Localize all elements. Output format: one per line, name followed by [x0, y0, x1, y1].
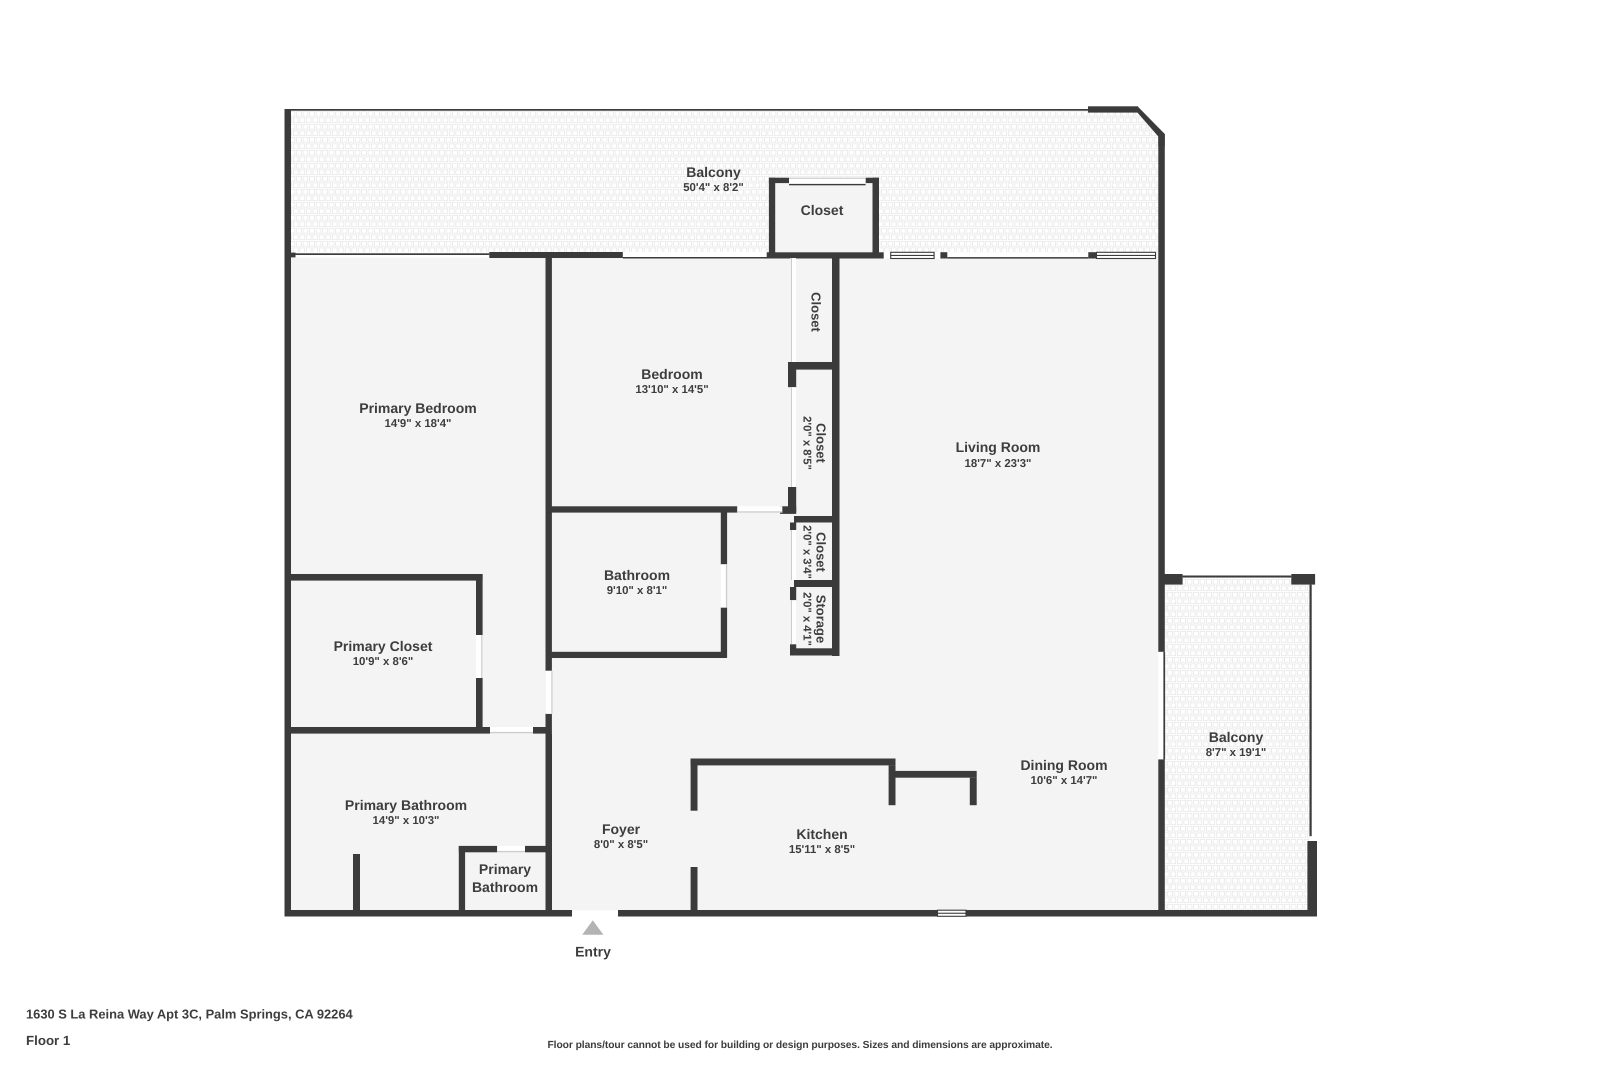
- svg-text:Bathroom: Bathroom: [604, 567, 670, 583]
- svg-text:18'7" x 23'3": 18'7" x 23'3": [965, 458, 1032, 470]
- svg-text:Bathroom: Bathroom: [472, 879, 538, 895]
- svg-text:Balcony: Balcony: [1209, 729, 1264, 745]
- svg-text:Primary Bathroom: Primary Bathroom: [345, 797, 467, 813]
- svg-text:Floor 1: Floor 1: [26, 1033, 71, 1048]
- svg-text:9'10" x 8'1": 9'10" x 8'1": [607, 585, 668, 597]
- svg-text:15'11" x 8'5": 15'11" x 8'5": [789, 844, 855, 856]
- svg-text:Kitchen: Kitchen: [796, 826, 847, 842]
- svg-text:Primary Bedroom: Primary Bedroom: [359, 400, 476, 416]
- svg-text:Closet: Closet: [801, 202, 844, 218]
- svg-text:2'0" x 3'4": 2'0" x 3'4": [801, 525, 813, 579]
- svg-text:2'0" x 4'1": 2'0" x 4'1": [801, 592, 813, 646]
- svg-text:Entry: Entry: [575, 944, 611, 960]
- svg-text:Closet: Closet: [814, 423, 829, 463]
- svg-text:Closet: Closet: [809, 292, 824, 332]
- svg-text:Balcony: Balcony: [686, 164, 741, 180]
- svg-text:50'4" x 8'2": 50'4" x 8'2": [683, 182, 744, 194]
- svg-text:8'0" x 8'5": 8'0" x 8'5": [594, 839, 648, 851]
- svg-text:Floor plans/tour cannot be use: Floor plans/tour cannot be used for buil…: [547, 1040, 1052, 1051]
- svg-text:Living Room: Living Room: [956, 439, 1041, 455]
- svg-text:8'7" x 19'1": 8'7" x 19'1": [1206, 747, 1267, 759]
- svg-text:Primary Closet: Primary Closet: [334, 638, 433, 654]
- svg-text:Bedroom: Bedroom: [641, 366, 702, 382]
- svg-text:Storage: Storage: [814, 595, 829, 643]
- svg-text:Foyer: Foyer: [602, 821, 641, 837]
- svg-text:13'10" x 14'5": 13'10" x 14'5": [635, 384, 708, 396]
- svg-text:Closet: Closet: [814, 532, 829, 572]
- svg-text:Dining Room: Dining Room: [1020, 757, 1107, 773]
- svg-text:2'0" x 8'5": 2'0" x 8'5": [801, 416, 813, 470]
- svg-text:14'9" x 10'3": 14'9" x 10'3": [373, 815, 440, 827]
- svg-text:10'9" x 8'6": 10'9" x 8'6": [353, 656, 414, 668]
- svg-text:Primary: Primary: [479, 861, 531, 877]
- svg-text:1630 S La Reina Way Apt 3C, Pa: 1630 S La Reina Way Apt 3C, Palm Springs…: [26, 1007, 354, 1022]
- svg-text:14'9" x 18'4": 14'9" x 18'4": [385, 418, 452, 430]
- svg-text:10'6" x 14'7": 10'6" x 14'7": [1031, 775, 1098, 787]
